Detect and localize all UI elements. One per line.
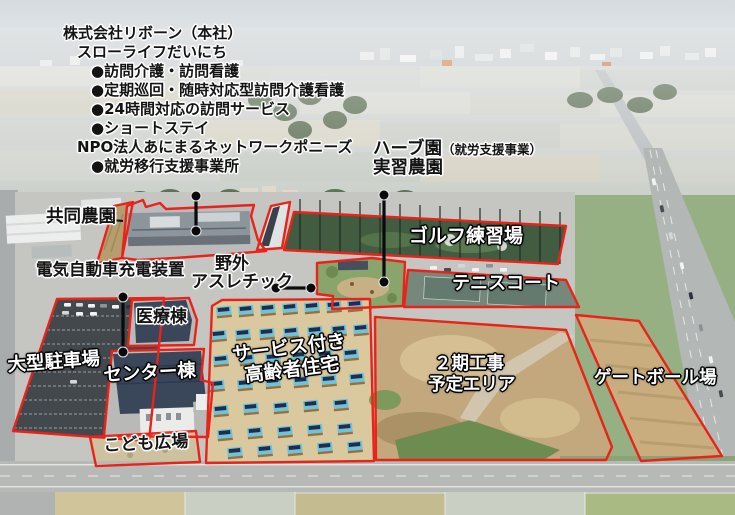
label-communal-farm: 共同農園 [46,208,116,228]
service-item: ●定期巡回・随時対応型訪問介護看護 [60,81,353,100]
service-item: ●ショートステイ [60,119,353,138]
herb-garden-note: （就労支援事業） [442,142,542,157]
herb-garden-subtitle: 実習農園 [373,159,542,178]
npo-service-item: ●就労移行支援事業所 [60,157,353,176]
npo-name: NPO法人あにまるネットワークポニーズ [60,138,353,157]
company-name: 株式会社リボーン（本社） [60,24,353,43]
label-medical-building: 医療棟 [136,308,187,327]
service-item: ●24時間対応の訪問サービス [60,100,353,119]
phase2-line2: 予定エリア [428,375,510,396]
athletic-line1: 野外 [191,255,273,273]
label-tennis-court: テニスコート [452,274,560,294]
label-herb-garden: ハーブ園（就労支援事業） 実習農園 [373,140,542,178]
label-golf-range: ゴルフ練習場 [409,226,523,247]
bottom-fields [0,492,735,515]
label-ev-charging: 電気自動車充電装置 [36,261,185,279]
label-outdoor-athletic: 野外 アスレチック [191,255,273,291]
label-phase2-area: ２期工事 予定エリア [428,354,510,396]
athletic-line2: アスレチック [191,273,273,291]
label-gateball-field: ゲートボール場 [594,369,717,389]
phase2-line1: ２期工事 [428,354,510,375]
facility-info-block: 株式会社リボーン（本社） スローライフだいにち ●訪問介護・訪問看護 ●定期巡回… [60,24,353,176]
herb-garden-title: ハーブ園 [373,139,442,159]
service-item: ●訪問介護・訪問看護 [60,62,353,81]
facility-name: スローライフだいにち [60,43,353,62]
annotated-aerial-map: 株式会社リボーン（本社） スローライフだいにち ●訪問介護・訪問看護 ●定期巡回… [0,0,735,515]
